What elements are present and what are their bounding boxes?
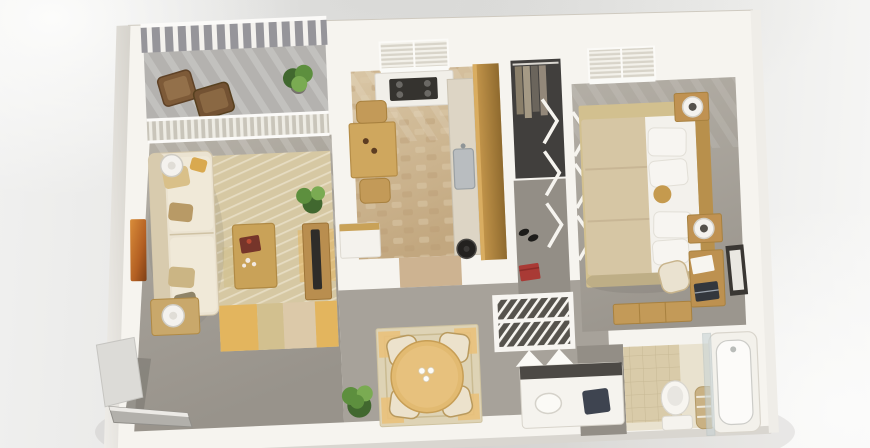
dresser — [613, 301, 692, 324]
kitchen-sink — [453, 148, 475, 189]
entry-step — [96, 337, 143, 407]
kitchen-sideboard — [339, 223, 380, 259]
coffee-table — [232, 223, 277, 289]
apartment — [83, 0, 779, 448]
laptop — [694, 281, 720, 302]
breakfast-table — [349, 122, 397, 178]
sofa — [148, 151, 219, 318]
vanity-sink — [535, 393, 562, 414]
bathtub — [703, 331, 761, 435]
nightstand — [687, 214, 722, 243]
linen-closet — [495, 294, 573, 349]
floor-lamp — [162, 304, 185, 327]
bedroom-window-blinds — [588, 46, 655, 84]
floorplan-svg: 3D rendered top-down floor plan of a one… — [0, 0, 870, 448]
serving-tray — [239, 235, 261, 254]
range-cooker — [375, 70, 454, 107]
nightstand — [674, 92, 709, 121]
vanity-basin — [582, 388, 611, 415]
tv-console — [302, 223, 331, 300]
storage-box — [519, 263, 541, 282]
throw-pillow — [168, 266, 195, 288]
pillow — [648, 158, 688, 188]
floorplan-render: 3D rendered top-down floor plan of a one… — [0, 0, 870, 448]
floor-lamp — [160, 154, 183, 177]
kitchen-chair — [359, 178, 390, 203]
kitchen-chair — [356, 100, 387, 123]
pillow — [648, 128, 686, 156]
desk — [689, 250, 725, 307]
bar-stool — [457, 239, 477, 259]
throw-pillow — [168, 202, 194, 223]
wall-art — [130, 219, 147, 281]
kitchen-doorway-floor — [399, 255, 462, 288]
pillow — [652, 239, 690, 266]
kitchen-window-blinds — [380, 39, 449, 73]
pillow — [654, 212, 692, 238]
duvet — [581, 117, 654, 276]
